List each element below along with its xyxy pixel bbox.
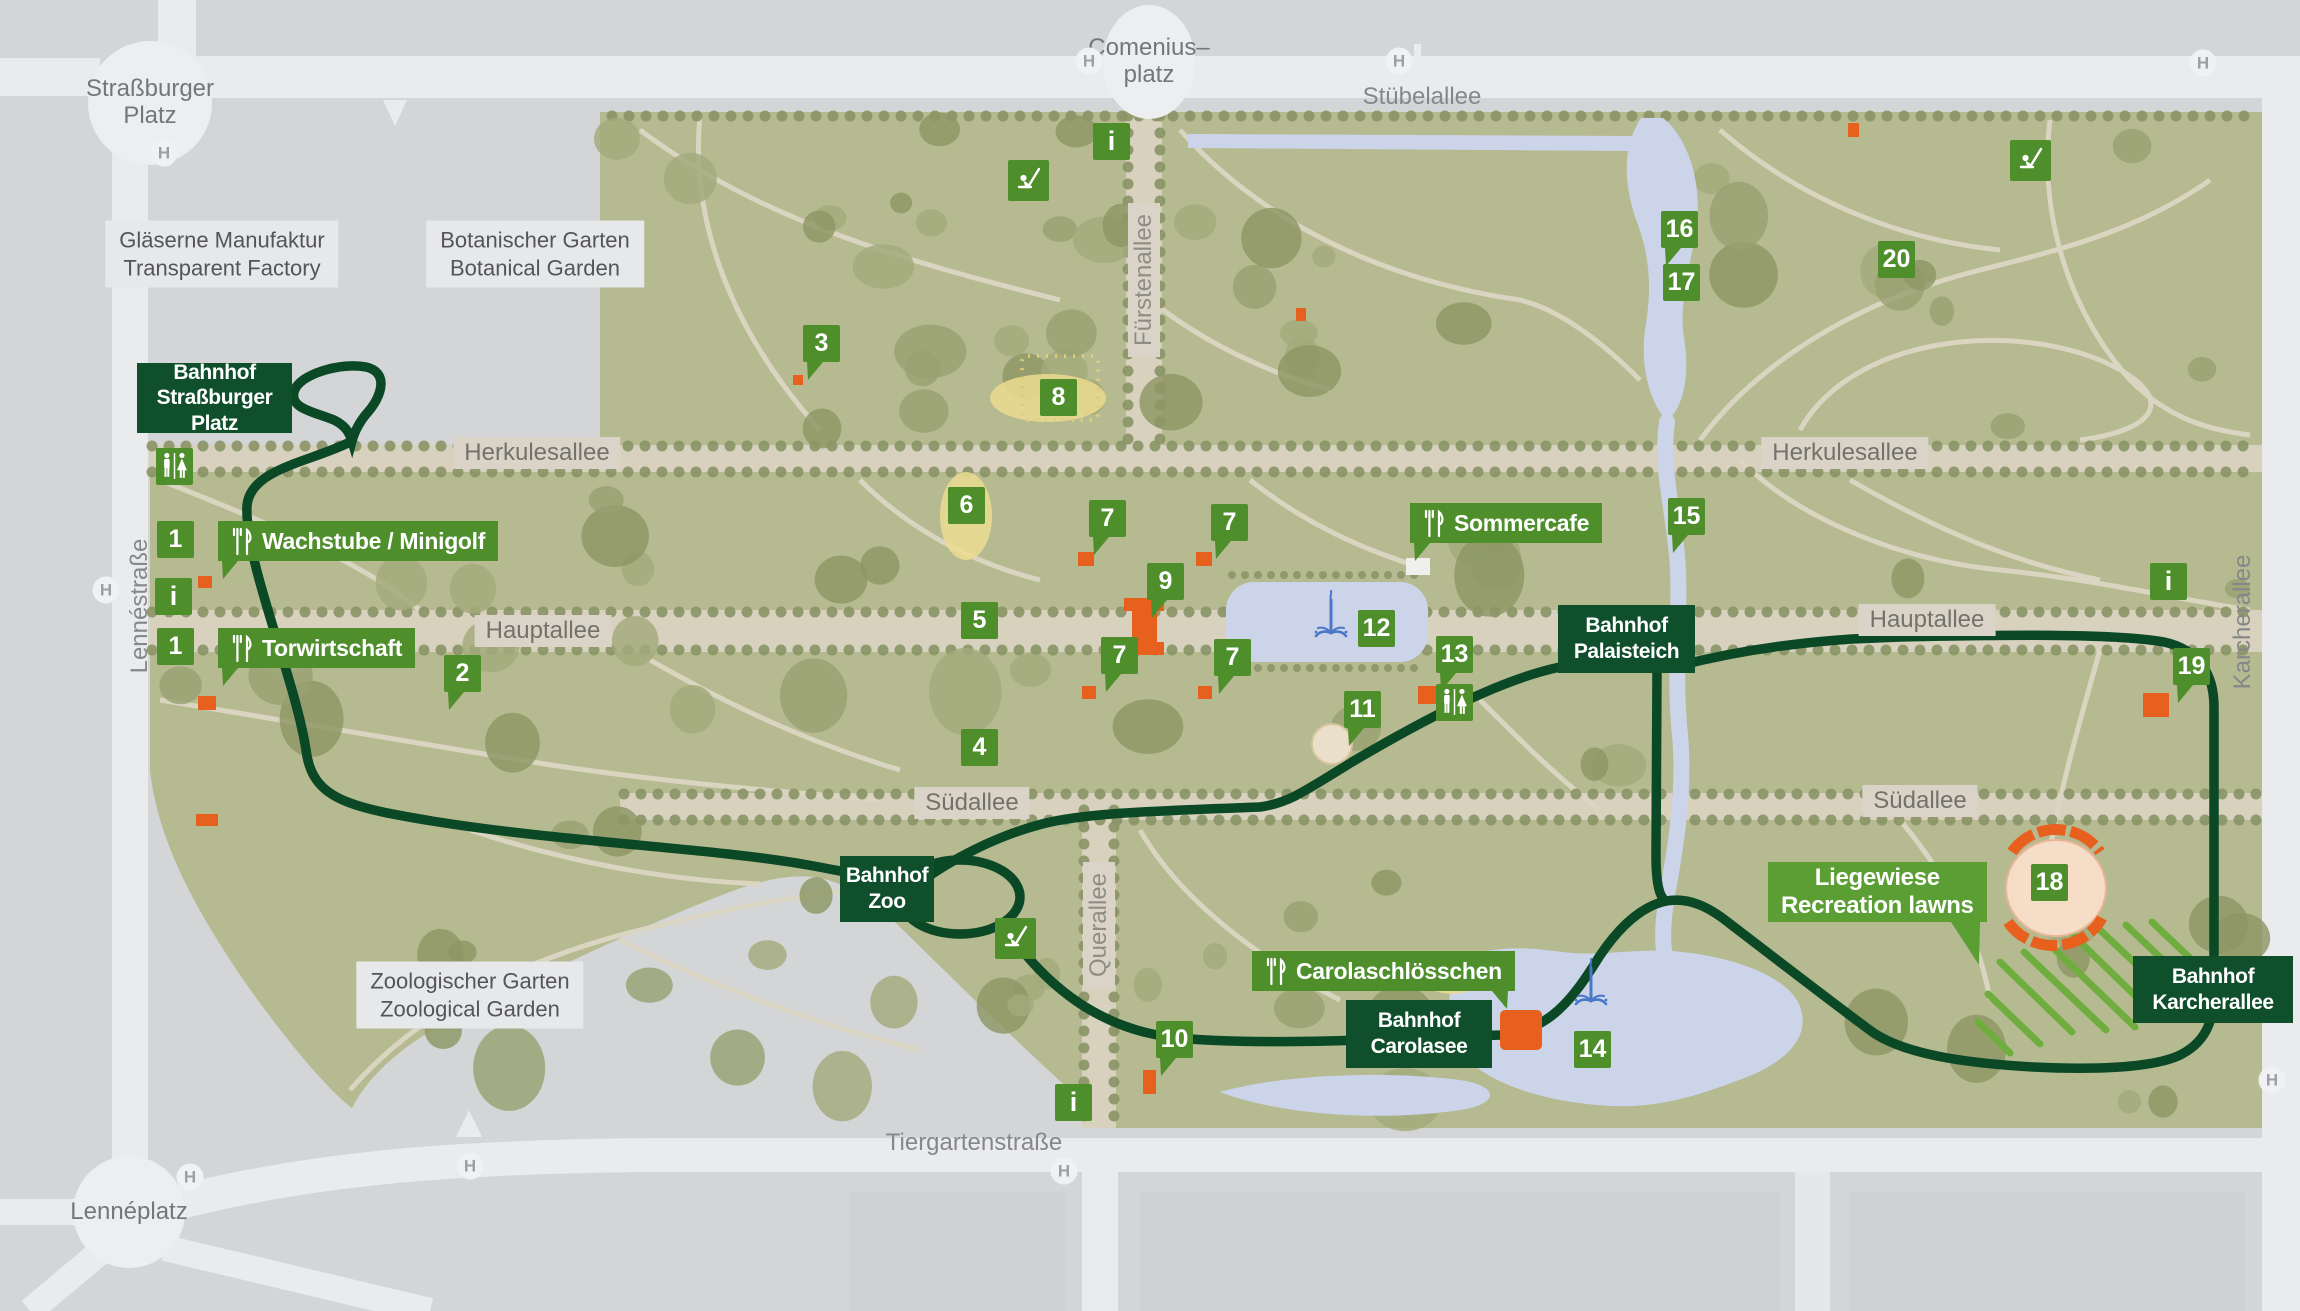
street-label-suedallee-west: Südallee [914,787,1029,819]
marker-number: 18 [2036,868,2064,897]
tram-stop-letter: H [1393,51,1405,71]
marker-number: 4 [973,733,987,762]
info-letter: i [2165,566,2173,597]
map-marker-13[interactable]: 13 [1436,636,1473,673]
plaza-lenneplatz-circle: Lennéplatz [73,1156,185,1268]
map-marker-8[interactable]: 8 [1040,379,1077,416]
plaza-comeniusplatz-circle: Comenius–platz [1103,5,1195,119]
fountain-icon [1572,956,1610,1010]
tram-stop-letter: H [184,1167,196,1187]
info-point-icon[interactable]: i [1055,1084,1092,1121]
marker-number: 17 [1668,268,1696,297]
marker-number: 8 [1052,383,1066,412]
street-label-karcherallee-street: Karcherallee [2229,555,2257,690]
restaurant-icon [1423,509,1444,538]
fountain-icon [1312,588,1350,642]
street-label-tiergartenstrasse: Tiergartenstraße [886,1129,1063,1157]
map-marker-16[interactable]: 16 [1661,211,1698,248]
plaza-label: Straßburger [86,76,214,103]
tram-stop-h: H [93,577,120,604]
street-label-text: Fürstenallee [1130,214,1157,346]
map-marker-12[interactable]: 12 [1358,610,1395,647]
station-label-carolasee[interactable]: BahnhofCarolasee [1346,1000,1492,1068]
poi-label-line: Liegewiese [1815,864,1940,892]
street-label-text: Hauptallee [486,617,601,644]
map-marker-15[interactable]: 15 [1668,498,1705,535]
map-marker-9[interactable]: 9 [1147,563,1184,600]
area-label-line: Gläserne Manufaktur [119,227,324,255]
info-point-icon[interactable]: i [1093,123,1130,160]
map-marker-1[interactable]: 1 [157,521,194,558]
poi-label-line: Recreation lawns [1781,892,1974,920]
plaza-label: platz [1124,62,1175,89]
marker-number: 1 [169,525,183,554]
street-label-suedallee-east: Südallee [1862,785,1977,817]
tram-stop-h: H [177,1164,204,1191]
station-label-line: Palaisteich [1574,639,1679,665]
street-label-text: Herkulesallee [464,439,609,466]
station-label-zoo[interactable]: BahnhofZoo [840,856,934,922]
tram-stop-letter: H [2197,53,2209,73]
street-label-hauptallee-east: Hauptallee [1859,604,1996,636]
street-label-text: Südallee [1873,787,1966,814]
poi-label-carolaschloesschen[interactable]: Carolaschlösschen [1252,951,1515,991]
map-marker-7[interactable]: 7 [1211,504,1248,541]
tram-stop-h: H [457,1153,484,1180]
station-label-line: Karcherallee [2152,990,2273,1016]
street-label-text: Karcherallee [2229,555,2256,690]
tram-stop-letter: H [1083,51,1095,71]
street-label-herkulesallee-east: Herkulesallee [1761,437,1928,469]
street-label-text: Herkulesallee [1772,439,1917,466]
tram-stop-h: H [1051,1158,1078,1185]
map-marker-7[interactable]: 7 [1214,639,1251,676]
marker-number: 3 [815,329,829,358]
tram-stop-h: H [2259,1067,2286,1094]
poi-pointer-tail [1951,922,1981,966]
marker-number: 5 [973,606,987,635]
marker-number: 2 [456,659,470,688]
restaurant-icon [1265,957,1286,986]
area-label-zoologischer-garten: Zoologischer GartenZoological Garden [356,962,583,1029]
marker-number: 9 [1159,567,1173,596]
poi-label-sommercafe[interactable]: Sommercafe [1410,503,1602,543]
marker-number: 7 [1113,641,1127,670]
info-letter: i [170,581,178,612]
map-marker-18[interactable]: 18 [2031,864,2068,901]
station-label-strassburger-platz[interactable]: BahnhofStraßburger Platz [137,363,292,433]
tram-stop-h: H [1076,48,1103,75]
wc-toilets-icon [1436,684,1473,721]
station-label-line: Bahnhof [846,863,928,889]
plaza-label: Comenius– [1088,35,1209,62]
info-letter: i [1070,1087,1078,1118]
plaza-label: Lennéplatz [70,1199,187,1226]
poi-label-torwirtschaft[interactable]: Torwirtschaft [218,628,415,668]
poi-label-text: Wachstube / Minigolf [262,528,485,555]
map-marker-17[interactable]: 17 [1663,264,1700,301]
station-label-line: Bahnhof [2172,964,2254,990]
map-marker-3[interactable]: 3 [803,325,840,362]
playground-swing-icon [1008,160,1049,201]
street-label-text: Stübelallee [1363,83,1482,110]
tram-stop-h: H [2190,50,2217,77]
marker-number: 11 [1349,695,1375,724]
plaza-label: Platz [123,103,176,130]
marker-number: 12 [1363,614,1391,643]
marker-number: 14 [1579,1035,1607,1064]
playground-swing-icon [995,918,1036,959]
marker-number: 10 [1161,1025,1189,1054]
area-label-line: Botanischer Garten [440,227,630,255]
map-marker-11[interactable]: 11 [1344,691,1381,728]
restaurant-icon [231,527,252,556]
street-label-fuerstenallee: Fürstenallee [1128,203,1160,357]
marker-number: 13 [1441,640,1469,669]
poi-label-text: Sommercafe [1454,510,1589,537]
info-letter: i [1108,126,1116,157]
street-label-text: Querallee [1085,873,1112,977]
station-label-line: Zoo [868,889,905,915]
area-label-line: Zoological Garden [370,995,569,1023]
map-marker-19[interactable]: 19 [2173,648,2210,685]
station-label-line: Bahnhof [173,360,255,386]
map-marker-14[interactable]: 14 [1574,1031,1611,1068]
station-label-line: Straßburger Platz [137,385,292,436]
area-label-glaeserne-manufaktur: Gläserne ManufakturTransparent Factory [105,221,338,288]
map-marker-20[interactable]: 20 [1878,241,1915,278]
poi-label-text: Carolaschlösschen [1296,958,1502,985]
station-label-karcherallee[interactable]: BahnhofKarcherallee [2133,956,2293,1023]
marker-number: 7 [1223,508,1237,537]
marker-number: 16 [1666,215,1694,244]
map-marker-2[interactable]: 2 [444,655,481,692]
street-label-text: Südallee [925,789,1018,816]
park-map: StraßburgerPlatzComenius–platzLennéplatz… [0,0,2300,1311]
street-label-text: Lennéstraße [126,539,153,674]
tram-stop-h: H [151,140,178,167]
tram-stop-letter: H [158,143,170,163]
marker-number: 20 [1883,245,1911,274]
playground-swing-icon [2010,140,2051,181]
area-label-line: Zoologischer Garten [370,968,569,996]
tram-stop-letter: H [2266,1070,2278,1090]
map-marker-4[interactable]: 4 [961,729,998,766]
marker-number: 7 [1101,504,1115,533]
station-label-line: Bahnhof [1378,1008,1460,1034]
map-marker-7[interactable]: 7 [1101,637,1138,674]
marker-number: 15 [1673,502,1701,531]
station-label-palaisteich[interactable]: BahnhofPalaisteich [1558,605,1695,673]
street-label-stuebelallee: Stübelallee [1363,83,1482,111]
marker-number: 19 [2178,652,2206,681]
station-label-line: Carolasee [1371,1034,1468,1060]
map-marker-10[interactable]: 10 [1156,1021,1193,1058]
street-label-lennestrasse: Lennéstraße [126,539,154,674]
street-label-herkulesallee-west: Herkulesallee [453,437,620,469]
map-marker-1[interactable]: 1 [157,628,194,665]
marker-number: 1 [169,632,183,661]
wc-toilets-icon [156,448,193,485]
plaza-strassburger-platz-circle: StraßburgerPlatz [88,41,212,165]
map-marker-6[interactable]: 6 [948,487,985,524]
area-label-botanischer-garten: Botanischer GartenBotanical Garden [426,221,644,288]
street-label-querallee: Querallee [1083,862,1115,988]
poi-pointer-tail [1492,991,1509,1010]
tram-stop-letter: H [100,580,112,600]
tram-stop-letter: H [464,1156,476,1176]
area-label-line: Botanical Garden [440,254,630,282]
street-label-text: Hauptallee [1870,606,1985,633]
marker-number: 6 [960,491,974,520]
info-point-icon[interactable]: i [2150,563,2187,600]
restaurant-icon [231,634,252,663]
poi-label-text: Torwirtschaft [262,635,402,662]
info-point-icon[interactable]: i [155,578,192,615]
street-label-text: Tiergartenstraße [886,1129,1063,1156]
map-marker-7[interactable]: 7 [1089,500,1126,537]
marker-number: 7 [1226,643,1240,672]
area-label-line: Transparent Factory [119,254,324,282]
poi-label-wachstube-minigolf[interactable]: Wachstube / Minigolf [218,521,498,561]
poi-label-liegewiese[interactable]: LiegewieseRecreation lawns [1768,862,1987,922]
map-marker-5[interactable]: 5 [961,602,998,639]
tram-stop-letter: H [1058,1161,1070,1181]
tram-stop-h: H [1386,48,1413,75]
street-label-hauptallee-west: Hauptallee [475,615,612,647]
station-label-line: Bahnhof [1585,613,1667,639]
